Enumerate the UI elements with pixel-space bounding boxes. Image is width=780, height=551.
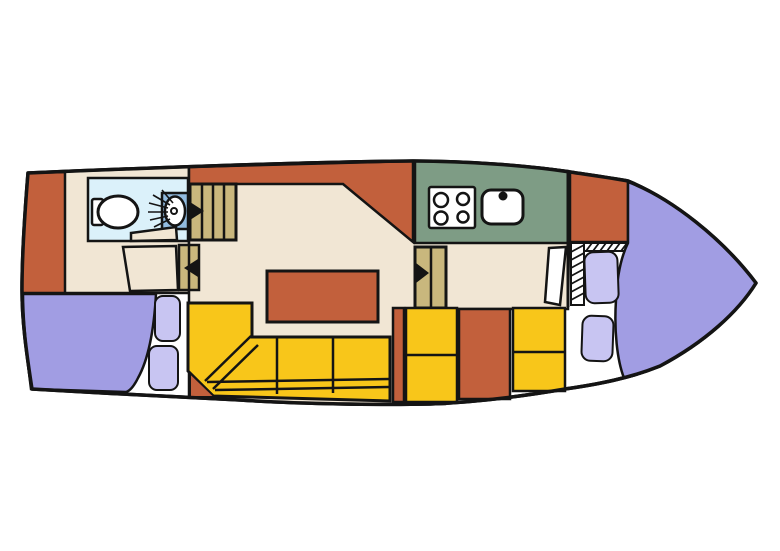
- berth-pillow: [584, 251, 619, 303]
- stern-berth: [23, 294, 156, 392]
- dinette-table: [267, 271, 378, 322]
- bow-cabin-steps-icon: [415, 247, 446, 308]
- burner: [434, 193, 448, 207]
- dinette-trim-strip: [393, 308, 404, 402]
- aft-cabin-steps-icon: [179, 245, 199, 290]
- sink-icon: [482, 190, 523, 224]
- berth-pillow: [149, 346, 178, 390]
- toilet-icon: [92, 196, 138, 228]
- burner: [435, 212, 448, 225]
- berth-pillow: [155, 296, 180, 341]
- stern-deck-trim: [22, 172, 65, 293]
- storage-cabinet: [459, 309, 510, 399]
- boat-floor-plan: [0, 0, 780, 551]
- dinette-seat: [513, 308, 565, 391]
- dinette-seat: [406, 308, 457, 402]
- burner: [458, 212, 469, 223]
- bow-deck-trim: [570, 172, 628, 242]
- burner: [457, 193, 469, 205]
- berth-pillow: [581, 315, 614, 361]
- faucet-dot: [499, 192, 508, 201]
- stove-icon: [429, 187, 475, 228]
- bathroom-door-leaf: [123, 246, 178, 291]
- companionway-stairs-icon: [190, 184, 236, 240]
- floor-plan-canvas: [0, 0, 780, 551]
- v-berth: [615, 182, 756, 378]
